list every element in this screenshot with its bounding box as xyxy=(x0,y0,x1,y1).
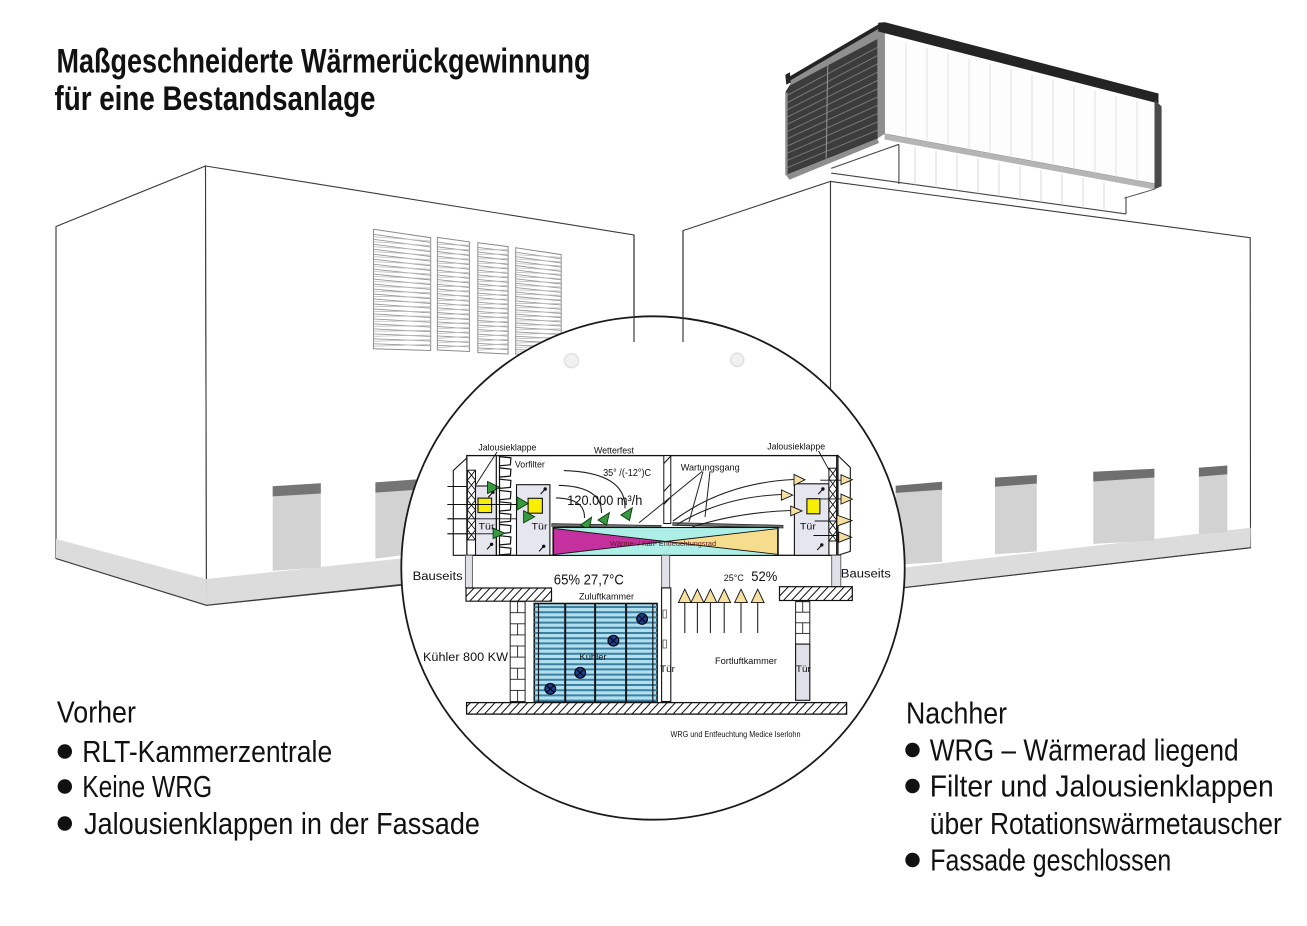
svg-text:für eine Bestandsanlage: für eine Bestandsanlage xyxy=(55,80,376,118)
svg-text:Zuluftkammer: Zuluftkammer xyxy=(579,591,634,601)
svg-text:WRG und Entfeuchtung Medice I: WRG und Entfeuchtung Medice Iserlohn xyxy=(671,730,801,739)
svg-text:Tür: Tür xyxy=(660,664,675,674)
svg-text:Bauseits: Bauseits xyxy=(841,567,891,581)
svg-text:RLT-Kammerzentrale: RLT-Kammerzentrale xyxy=(82,735,332,769)
svg-text:Nachher: Nachher xyxy=(906,697,1007,731)
svg-text:Jalousieklappe: Jalousieklappe xyxy=(767,442,825,452)
svg-text:Keine WRG: Keine WRG xyxy=(82,770,212,804)
svg-text:Bauseits: Bauseits xyxy=(413,569,463,583)
svg-text:Jalousienklappen in der Fassad: Jalousienklappen in der Fassade xyxy=(84,807,480,841)
svg-text:Kühler: Kühler xyxy=(580,652,607,662)
svg-text:52%: 52% xyxy=(751,568,777,584)
svg-text:Vorfilter: Vorfilter xyxy=(515,460,545,470)
svg-text:120.000 m³/h: 120.000 m³/h xyxy=(567,492,642,508)
svg-text:Tür: Tür xyxy=(796,664,811,674)
svg-text:über Rotationswärmetauscher: über Rotationswärmetauscher xyxy=(930,807,1282,841)
svg-text:Tür: Tür xyxy=(800,522,816,532)
svg-text:25°C: 25°C xyxy=(724,573,744,583)
svg-text:Jalousieklappe: Jalousieklappe xyxy=(478,442,536,452)
svg-text:Tür: Tür xyxy=(479,522,495,532)
svg-text:Vorher: Vorher xyxy=(57,696,136,730)
svg-text:Filter und Jalousienklappen: Filter und Jalousienklappen xyxy=(930,770,1274,804)
svg-text:65% 27,7°C: 65% 27,7°C xyxy=(554,572,624,589)
svg-text:Wartungsgang: Wartungsgang xyxy=(681,462,740,473)
svg-text:35° /(-12°)C: 35° /(-12°)C xyxy=(603,468,651,479)
svg-text:Kühler 800 KW: Kühler 800 KW xyxy=(423,650,508,664)
svg-text:Maßgeschneiderte Wärmerückgewi: Maßgeschneiderte Wärmerückgewinnung xyxy=(57,43,591,81)
svg-text:Fassade geschlossen: Fassade geschlossen xyxy=(930,844,1171,878)
svg-text:Wetterfest: Wetterfest xyxy=(594,446,634,456)
svg-text:Fortluftkammer: Fortluftkammer xyxy=(715,656,777,666)
svg-text:WRG – Wärmerad liegend: WRG – Wärmerad liegend xyxy=(930,734,1239,768)
svg-text:Tür: Tür xyxy=(532,522,548,532)
svg-text:Wärme- / Kält- Entfeuchtungsra: Wärme- / Kält- Entfeuchtungsrad xyxy=(610,541,716,548)
